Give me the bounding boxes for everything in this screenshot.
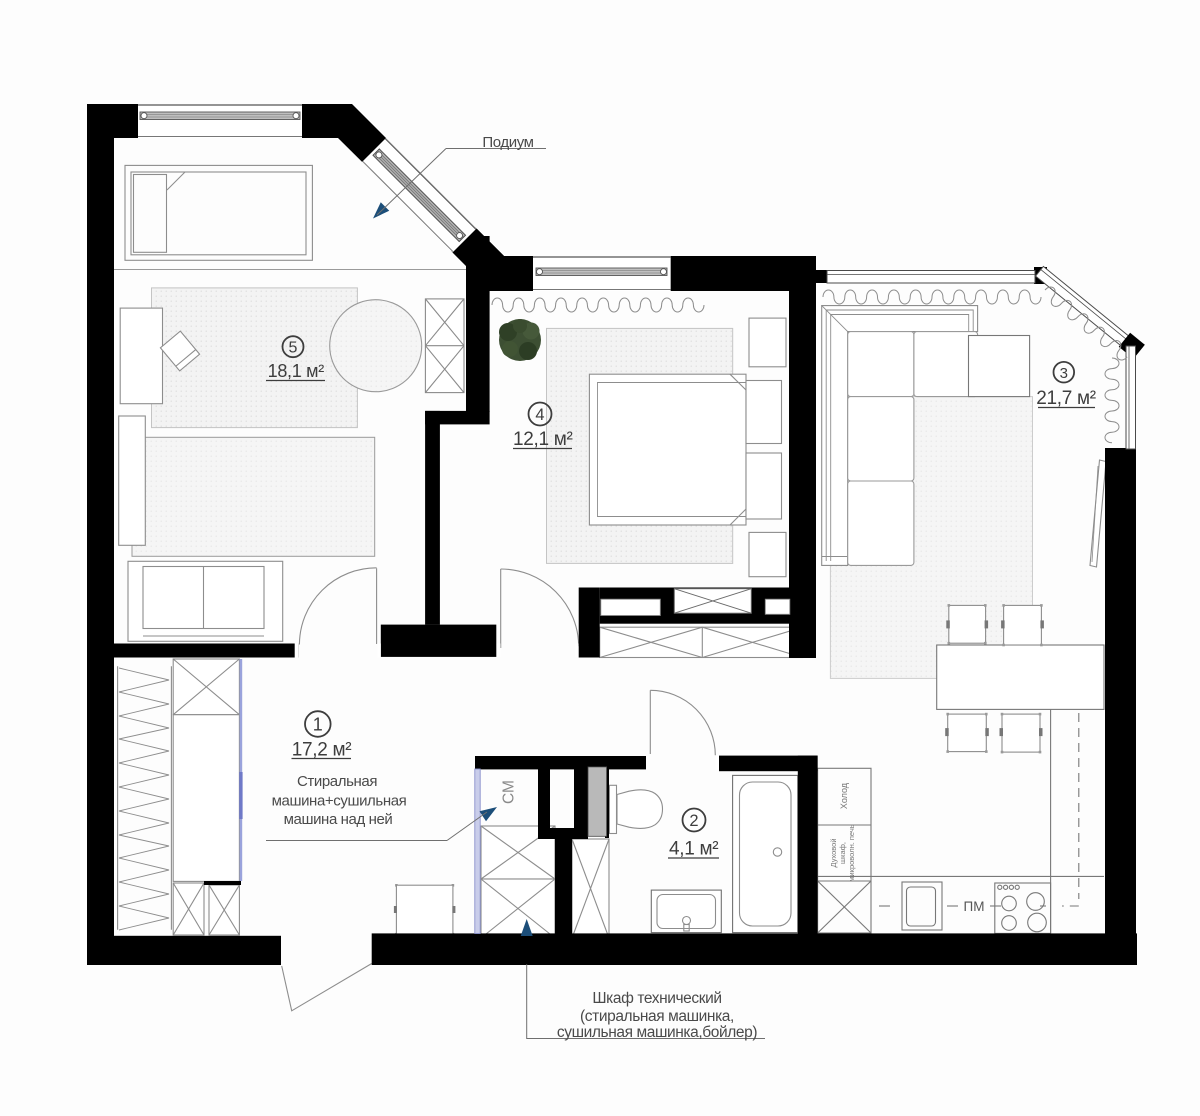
- svg-text:3: 3: [1060, 365, 1068, 382]
- svg-text:сушильная машинка,бойлер): сушильная машинка,бойлер): [557, 1024, 757, 1041]
- svg-text:4,1 м²: 4,1 м²: [669, 839, 718, 860]
- svg-text:микроволн. печь: микроволн. печь: [847, 824, 856, 881]
- svg-text:машина+сушильная: машина+сушильная: [272, 793, 407, 810]
- svg-text:Подиум: Подиум: [482, 134, 533, 151]
- svg-text:1: 1: [313, 715, 323, 735]
- svg-text:Шкаф технический: Шкаф технический: [592, 990, 721, 1007]
- svg-text:СМ: СМ: [501, 780, 518, 804]
- svg-text:Холод: Холод: [839, 782, 849, 809]
- svg-text:ПМ: ПМ: [964, 899, 985, 914]
- svg-text:18,1 м²: 18,1 м²: [268, 361, 325, 381]
- svg-text:машина над ней: машина над ней: [284, 811, 393, 828]
- svg-text:12,1 м²: 12,1 м²: [513, 429, 573, 450]
- svg-text:шкаф,: шкаф,: [838, 842, 847, 864]
- svg-text:21,7 м²: 21,7 м²: [1036, 388, 1096, 409]
- svg-text:Стиральная: Стиральная: [297, 773, 377, 790]
- svg-text:(стиральная машинка,: (стиральная машинка,: [580, 1008, 734, 1025]
- svg-text:Духовой: Духовой: [829, 838, 838, 867]
- svg-text:2: 2: [689, 812, 698, 830]
- svg-text:5: 5: [289, 340, 298, 357]
- svg-text:4: 4: [535, 406, 544, 424]
- svg-text:17,2 м²: 17,2 м²: [292, 740, 352, 761]
